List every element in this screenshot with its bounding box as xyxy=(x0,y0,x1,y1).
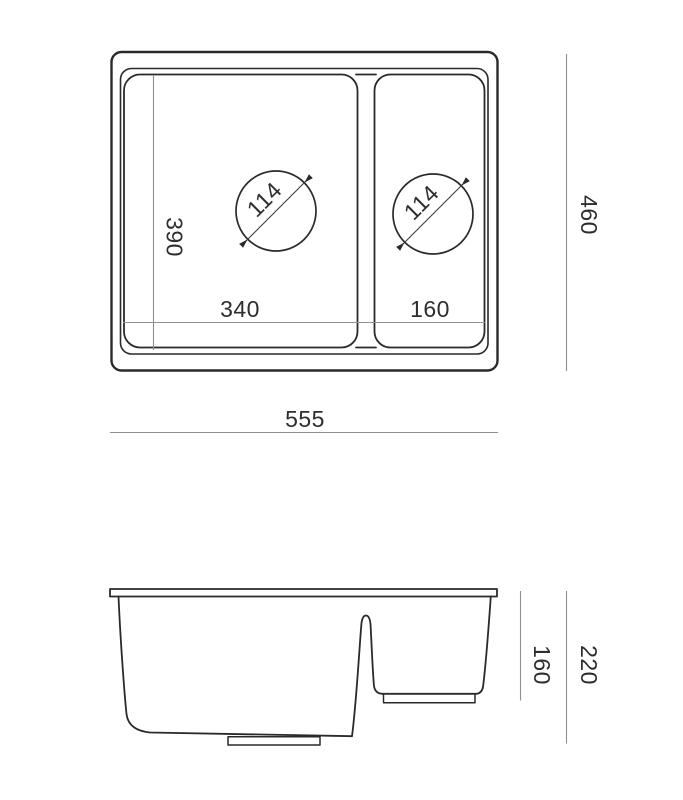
bowl2-width-label: 160 xyxy=(410,296,450,322)
large-bowl-foot xyxy=(228,737,320,745)
large-drain-diameter-label: 114 xyxy=(242,177,287,222)
overall-height-label: 220 xyxy=(576,645,602,685)
side-flange xyxy=(110,589,497,597)
small-drain-diameter-label: 114 xyxy=(399,180,444,225)
bowl1-width-label: 340 xyxy=(220,296,260,322)
bowl2-height-label: 160 xyxy=(529,645,555,685)
sink-technical-drawing: 114 114 390 340 160 555 460 xyxy=(0,0,683,800)
overall-width-label: 555 xyxy=(285,406,325,432)
bowl-divider-edges xyxy=(356,75,376,348)
side-body-profile xyxy=(119,597,491,737)
small-bowl-foot xyxy=(384,694,476,703)
top-view: 114 114 390 340 160 555 460 xyxy=(110,52,602,433)
bowl1-depth-label: 390 xyxy=(162,217,188,257)
overall-depth-label: 460 xyxy=(576,195,602,235)
side-view: 160 220 xyxy=(110,589,602,745)
drawing-canvas: 114 114 390 340 160 555 460 xyxy=(0,0,683,800)
